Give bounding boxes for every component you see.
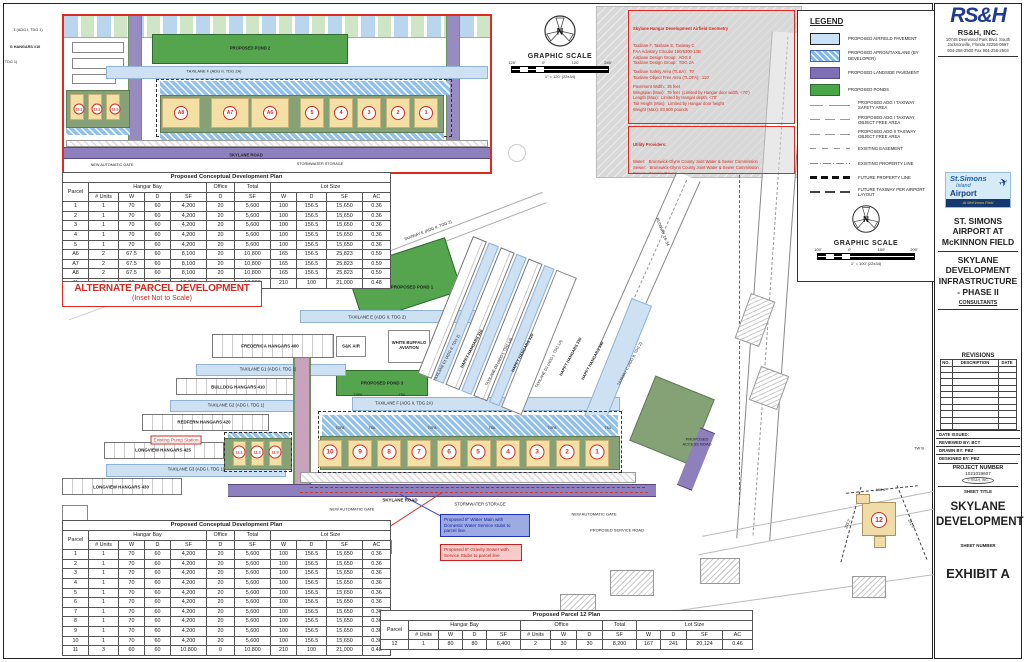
revisions-table: NO.DESCRIPTIONDATE bbox=[936, 359, 1020, 430]
data-table: Proposed Conceptual Development PlanParc… bbox=[62, 520, 391, 656]
scale-tick: 100' bbox=[814, 247, 821, 252]
banner-title: ALTERNATE PARCEL DEVELOPMENT bbox=[63, 282, 261, 295]
north-arrow-icon: N bbox=[543, 14, 577, 48]
parcel-circle: 7 bbox=[412, 445, 427, 460]
legend-item: PROPOSED LANDSIDE PAVEMENT bbox=[810, 64, 928, 81]
firm-address: 10748 Deerwood Park Blvd. South Jacksonv… bbox=[936, 37, 1020, 53]
legend-item: PROPOSED ADG II TAXIWAY OBJECT FREE AREA bbox=[810, 127, 928, 142]
issued-row: DESIGNED BY: PBZ bbox=[936, 454, 1020, 462]
sheet-number: EXHIBIT A bbox=[936, 566, 1020, 581]
legend-item: EXISTING EASEMENT bbox=[810, 142, 928, 157]
consultants-label: CONSULTANTS bbox=[936, 300, 1020, 306]
data-table: Proposed Parcel 12 PlanParcelHangar BayO… bbox=[380, 610, 753, 650]
legend-swatch-sw-apron bbox=[810, 50, 840, 62]
parcel-circle: 8 bbox=[382, 445, 397, 460]
legend-swatch-sw-land bbox=[810, 67, 840, 79]
parcel-circle: 11.3 bbox=[269, 446, 282, 459]
legend-label: PROPOSED ADG II TAXIWAY OBJECT FREE AREA bbox=[858, 129, 928, 139]
alternate-parcel-inset: PROPOSED POND 2TAXILANE F (ADG II, TDG 2… bbox=[62, 14, 492, 174]
legend-item: EXISTING PROPERTY LINE bbox=[810, 156, 928, 171]
graphic-scale-1: N GRAPHIC SCALE 120' 0' 120' 240' 1" = 1… bbox=[505, 14, 615, 79]
legend-swatch-sw-pond bbox=[810, 84, 840, 96]
titleblock: RS&H RS&H, INC. 10748 Deerwood Park Blvd… bbox=[936, 4, 1020, 656]
legend-swatch-ln-ease bbox=[810, 147, 850, 150]
utility-box-title: Utility Providers: bbox=[633, 142, 790, 148]
plan-sheet: Existing Pump Station Proposed 8" Water … bbox=[0, 0, 1024, 662]
legend-line-sample bbox=[810, 119, 850, 120]
sheet-title: SKYLANE DEVELOPMENT bbox=[936, 500, 1020, 530]
legend-line-sample bbox=[810, 148, 850, 149]
parcel-circle: A8 bbox=[174, 106, 188, 120]
legend-line-sample bbox=[810, 163, 850, 164]
graphic-scale-2: GRAPHIC SCALE 100' 0' 100' 200' 1" = 100… bbox=[798, 240, 934, 266]
scale-bar bbox=[817, 253, 915, 260]
parcel-circle: 10 bbox=[323, 445, 338, 460]
legend-line-sample bbox=[810, 191, 850, 193]
legend-panel: LEGEND PROPOSED AIRFIELD PAVEMENTPROPOSE… bbox=[797, 10, 935, 282]
legend-item: FUTURE PROPERTY LINE bbox=[810, 171, 928, 186]
scale-tick: 100' bbox=[878, 247, 885, 252]
legend-line-sample bbox=[810, 176, 850, 179]
issued-row: DATE ISSUED: bbox=[936, 430, 1020, 438]
parcel-circle: 11.1 bbox=[233, 446, 246, 459]
parcel-circle: 2 bbox=[391, 106, 405, 120]
utility-box-lines: Water: Brunswick-Glynn County Joint Wate… bbox=[633, 159, 790, 174]
scale-note: 1" = 120' (22x34) bbox=[505, 74, 615, 79]
scale-tick: 240' bbox=[604, 60, 611, 65]
project-number: 1021019607 bbox=[936, 471, 1020, 476]
parcel-circle: 5 bbox=[471, 445, 486, 460]
conceptual-development-table: Proposed Conceptual Development PlanParc… bbox=[62, 520, 391, 656]
svg-text:N: N bbox=[863, 215, 869, 224]
legend-item: PROPOSED PONDS bbox=[810, 81, 928, 98]
legend-swatch-ln-tofa bbox=[810, 118, 850, 121]
scale-title: GRAPHIC SCALE bbox=[505, 53, 615, 60]
svg-text:N: N bbox=[557, 27, 564, 37]
parcel-circle: 9 bbox=[353, 445, 368, 460]
parcel-circle: 1 bbox=[590, 445, 605, 460]
legend-line-sample bbox=[810, 105, 850, 106]
parcel-circle: 11.3 bbox=[110, 104, 121, 115]
rsh-logo: RS&H bbox=[936, 4, 1020, 28]
legend-label: FUTURE TAXIWAY PER AIRPORT LAYOUT bbox=[858, 187, 928, 197]
north-arrow-icon: N bbox=[851, 204, 881, 234]
parcel-circle: 4 bbox=[501, 445, 516, 460]
parcel-circle: 2 bbox=[560, 445, 575, 460]
legend-label: PROPOSED LANDSIDE PAVEMENT bbox=[848, 70, 919, 75]
parcel-12-table: Proposed Parcel 12 PlanParcelHangar BayO… bbox=[380, 610, 753, 650]
airport-logo-line: Airport bbox=[946, 189, 1010, 198]
scale-tick: 200' bbox=[910, 247, 917, 252]
legend-label: PROPOSED ADG I TAXIWAY SAFETY AREA bbox=[858, 100, 928, 110]
parcel-circle: 1 bbox=[419, 106, 433, 120]
airport-name: ST. SIMONS AIRPORT AT McKINNON FIELD bbox=[936, 216, 1020, 248]
utility-providers-box: Utility Providers: Water: Brunswick-Glyn… bbox=[628, 126, 795, 174]
legend-item: FUTURE TAXIWAY PER AIRPORT LAYOUT bbox=[810, 185, 928, 200]
legend-compass: N bbox=[798, 204, 934, 239]
legend-label: PROPOSED APRON/TAXILANE (BY DEVELOPER) bbox=[848, 50, 928, 60]
legend-title: LEGEND bbox=[810, 17, 934, 26]
legend-line-sample bbox=[810, 134, 850, 135]
project-title: SKYLANE DEVELOPMENT INFRASTRUCTURE - PHA… bbox=[936, 255, 1020, 298]
legend-swatch-ln-ftaxi bbox=[810, 191, 850, 194]
legend-item: PROPOSED ADG I TAXIWAY OBJECT FREE AREA bbox=[810, 113, 928, 128]
parcel-circle: 5 bbox=[305, 106, 319, 120]
airport-logo-field: At McKinnon Field bbox=[946, 199, 1010, 207]
issued-row: REVIEWED BY: BCT bbox=[936, 438, 1020, 446]
parcel-circle: 12 bbox=[871, 512, 887, 528]
copyright-stamp: © RS&H, INC. bbox=[962, 477, 994, 484]
parcel-circle: 3 bbox=[530, 445, 545, 460]
inset-parcel-circles: 11.111.211.3A8A7A654321 bbox=[64, 16, 490, 172]
legend-swatch-ln-tofa bbox=[810, 133, 850, 136]
legend-label: EXISTING EASEMENT bbox=[858, 146, 903, 151]
scale-note: 1" = 100' (22x34) bbox=[798, 261, 934, 266]
scale-tick: 0' bbox=[848, 247, 851, 252]
banner-subtitle: (Inset Not to Scale) bbox=[63, 295, 261, 303]
info-line: Weight (Max): 83,500 pounds bbox=[633, 107, 790, 113]
scale-tick: 120' bbox=[572, 60, 579, 65]
legend-item: PROPOSED APRON/TAXILANE (BY DEVELOPER) bbox=[810, 47, 928, 64]
alternate-parcel-banner: ALTERNATE PARCEL DEVELOPMENT (Inset Not … bbox=[62, 281, 262, 307]
legend-label: PROPOSED PONDS bbox=[848, 87, 889, 92]
info-line: Power: Georgia Power bbox=[633, 171, 790, 174]
scale-title: GRAPHIC SCALE bbox=[798, 240, 934, 247]
geometry-box-title: Skylane Hangar Development Airfield Geom… bbox=[633, 26, 790, 32]
legend-label: PROPOSED AIRFIELD PAVEMENT bbox=[848, 36, 917, 41]
legend-swatch-ln-tsa bbox=[810, 104, 850, 107]
issued-row: DRAWN BY: PBZ bbox=[936, 446, 1020, 454]
legend-swatch-sw-air bbox=[810, 33, 840, 45]
revisions-grid: NO.DESCRIPTIONDATE bbox=[940, 359, 1017, 430]
legend-label: PROPOSED ADG I TAXIWAY OBJECT FREE AREA bbox=[858, 115, 928, 125]
legend-label: EXISTING PROPERTY LINE bbox=[858, 161, 913, 166]
legend-item: PROPOSED ADG I TAXIWAY SAFETY AREA bbox=[810, 98, 928, 113]
parcel-circle: 3 bbox=[362, 106, 376, 120]
data-table: Proposed Conceptual Development PlanParc… bbox=[62, 172, 391, 289]
parcel-circle: 11.2 bbox=[92, 104, 103, 115]
geometry-box-lines: Taxilane F, Taxilane E, Taxiway CFAA Adv… bbox=[633, 43, 790, 113]
parcel-circle: 11.1 bbox=[74, 104, 85, 115]
parcel-circle: 11.2 bbox=[251, 446, 264, 459]
parcel-circle: A7 bbox=[223, 106, 237, 120]
scale-tick: 120' bbox=[508, 60, 515, 65]
legend-swatch-ln-fprop bbox=[810, 176, 850, 179]
legend-item: PROPOSED AIRFIELD PAVEMENT bbox=[810, 30, 928, 47]
legend-swatch-ln-eprop bbox=[810, 162, 850, 165]
alternate-development-table: Proposed Conceptual Development PlanParc… bbox=[62, 172, 391, 289]
airfield-geometry-box: Skylane Hangar Development Airfield Geom… bbox=[628, 10, 795, 124]
sheet-title-label: SHEET TITLE bbox=[936, 489, 1020, 494]
parcel-circle: 4 bbox=[334, 106, 348, 120]
scale-bar bbox=[511, 66, 609, 73]
parcel-circle: 6 bbox=[442, 445, 457, 460]
airport-logo: St.Simons Island Airport ✈ At McKinnon F… bbox=[945, 172, 1011, 208]
parcel-circle: A6 bbox=[263, 106, 277, 120]
scale-tick: 0' bbox=[542, 60, 545, 65]
issued-rows: DATE ISSUED:REVIEWED BY: BCTDRAWN BY: PB… bbox=[936, 430, 1020, 461]
firm-name: RS&H, INC. bbox=[936, 28, 1020, 37]
legend-items: PROPOSED AIRFIELD PAVEMENTPROPOSED APRON… bbox=[798, 30, 934, 200]
legend-label: FUTURE PROPERTY LINE bbox=[858, 175, 911, 180]
